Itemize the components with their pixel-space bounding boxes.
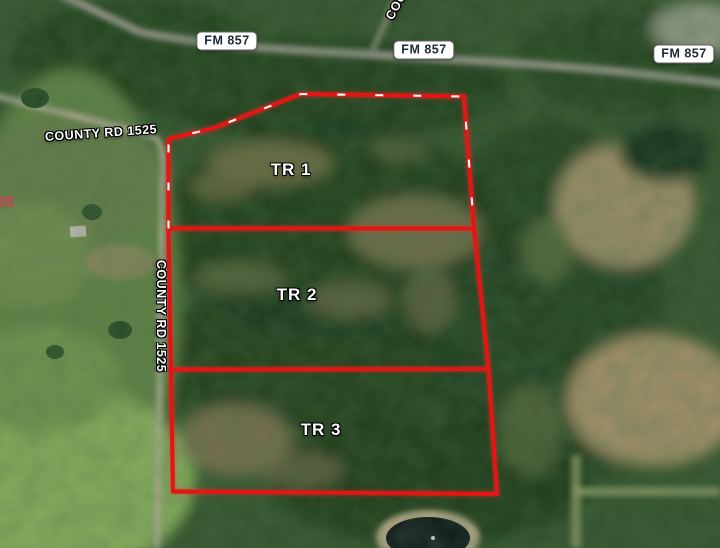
tract-label-tr2: TR 2 [277,285,318,305]
road-shield-label: FM 857 [661,47,706,61]
satellite-imagery [0,0,720,548]
road-label-county-rd-1525-vertical: COUNTY RD 1525 [154,260,168,372]
road-shield-label: FM 857 [204,34,249,48]
road-shield-fm857-2: FM 857 [393,41,454,60]
road-shield-label: FM 857 [401,43,446,57]
boundary-tr2-tr3-divider [170,369,489,370]
road-shield-fm857-3: FM 857 [653,45,714,64]
satellite-map-view[interactable]: FM 857 FM 857 FM 857 COUNTY RD 1525 COUN… [0,0,720,548]
texture-noise [0,0,720,548]
road-shield-fm857-1: FM 857 [196,32,257,51]
tract-label-tr1: TR 1 [271,160,312,180]
tract-label-tr3: TR 3 [301,420,342,440]
boundary-bottom-edge [173,492,497,495]
